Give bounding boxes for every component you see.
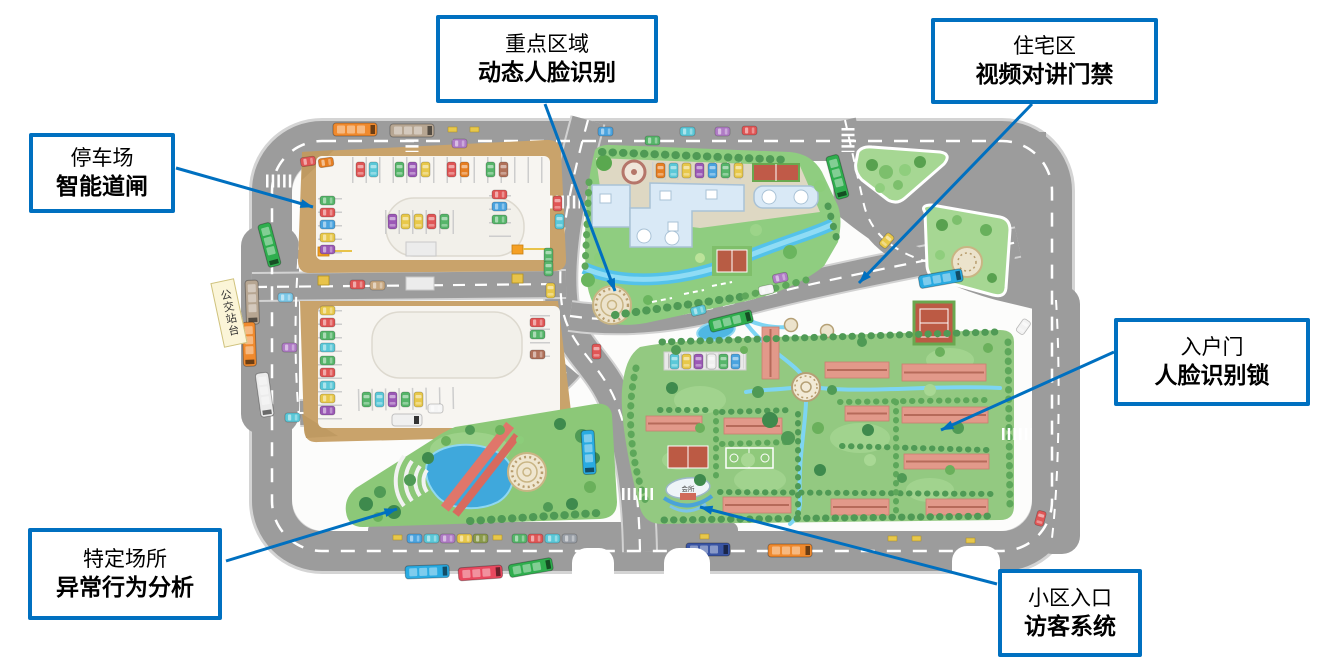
callout-special-place-title: 特定场所 (83, 547, 167, 572)
smart-community-diagram: 会所 (0, 0, 1319, 668)
callout-entry-door: 入户门 人脸识别锁 (1114, 318, 1310, 406)
callout-residential-area: 住宅区 视频对讲门禁 (931, 18, 1158, 104)
callout-community-entrance: 小区入口 访客系统 (998, 569, 1142, 657)
callout-community-entrance-title: 小区入口 (1028, 586, 1112, 611)
gate-label: 会所 (682, 484, 696, 493)
callout-special-place: 特定场所 异常行为分析 (28, 528, 222, 620)
callout-parking-lot-subtitle: 智能道闸 (56, 173, 148, 201)
callout-residential-area-title: 住宅区 (1013, 34, 1076, 59)
callout-key-area-subtitle: 动态人脸识别 (478, 59, 616, 87)
callout-special-place-subtitle: 异常行为分析 (56, 574, 194, 602)
callout-parking-lot: 停车场 智能道闸 (29, 133, 175, 213)
callout-key-area-title: 重点区域 (505, 32, 589, 57)
callout-key-area: 重点区域 动态人脸识别 (436, 15, 658, 103)
callout-parking-lot-title: 停车场 (71, 146, 134, 171)
callout-community-entrance-subtitle: 访客系统 (1024, 613, 1116, 641)
callout-residential-area-subtitle: 视频对讲门禁 (976, 61, 1114, 89)
callout-entry-door-subtitle: 人脸识别锁 (1155, 362, 1270, 390)
callout-entry-door-title: 入户门 (1181, 335, 1244, 360)
